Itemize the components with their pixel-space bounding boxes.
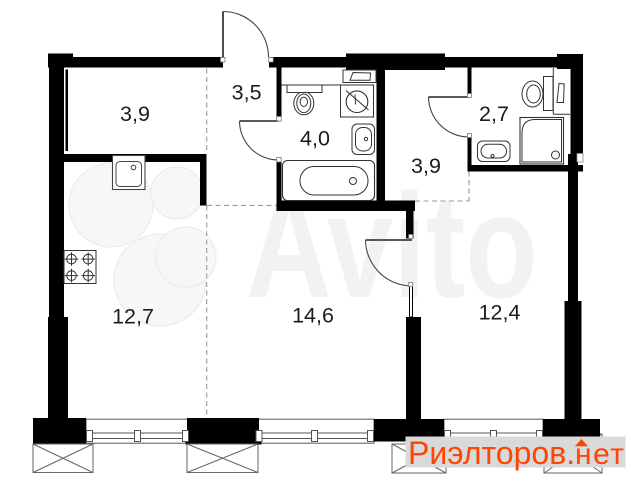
svg-text:4,0: 4,0 (300, 126, 330, 150)
svg-text:Риэлторов.: Риэлторов. (408, 435, 575, 471)
svg-text:2,7: 2,7 (479, 102, 509, 126)
svg-text:14,6: 14,6 (292, 303, 334, 327)
svg-text:3,5: 3,5 (232, 80, 262, 104)
svg-text:12,4: 12,4 (479, 301, 521, 325)
svg-text:12,7: 12,7 (112, 305, 154, 329)
svg-text:3,9: 3,9 (120, 102, 150, 126)
svg-text:3,9: 3,9 (411, 154, 441, 178)
